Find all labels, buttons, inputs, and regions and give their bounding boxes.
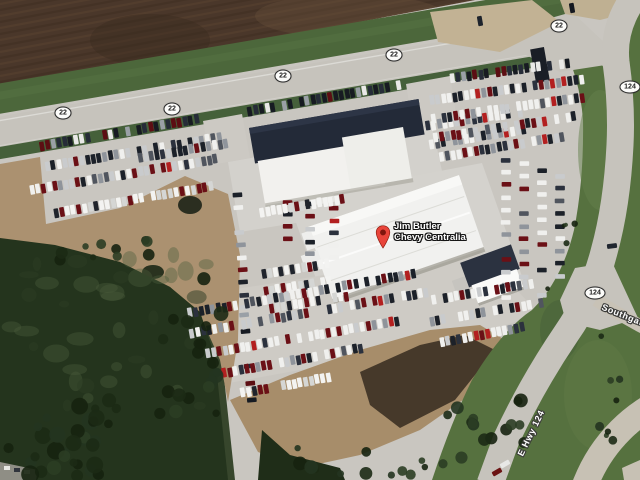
route-shield-label: 22 <box>168 106 176 113</box>
route-shield-124: 124 <box>585 287 606 300</box>
route-shield-label: 22 <box>59 110 67 117</box>
route-shield-22: 22 <box>164 103 181 116</box>
route-shield-label: 124 <box>624 84 636 91</box>
route-shield-label: 22 <box>279 73 287 80</box>
satellite-imagery <box>0 0 640 480</box>
route-shield-124: 124 <box>620 81 640 94</box>
marker-label-line1: Jim Butler <box>394 221 466 232</box>
route-shield-label: 22 <box>555 23 563 30</box>
marker-label[interactable]: Jim Butler Chevy Centralia <box>394 221 466 243</box>
place-marker[interactable] <box>375 225 391 249</box>
route-shield-22: 22 <box>386 49 403 62</box>
satellite-map[interactable]: 22 22 22 22 22 124 124 E Hwy 124 Southga… <box>0 0 640 480</box>
route-shield-22: 22 <box>55 107 72 120</box>
route-shield-label: 124 <box>589 290 601 297</box>
route-shield-label: 22 <box>390 52 398 59</box>
route-shield-22: 22 <box>275 70 292 83</box>
route-shield-22: 22 <box>551 20 568 33</box>
marker-pin-icon <box>375 225 391 249</box>
marker-label-line2: Chevy Centralia <box>394 232 466 243</box>
